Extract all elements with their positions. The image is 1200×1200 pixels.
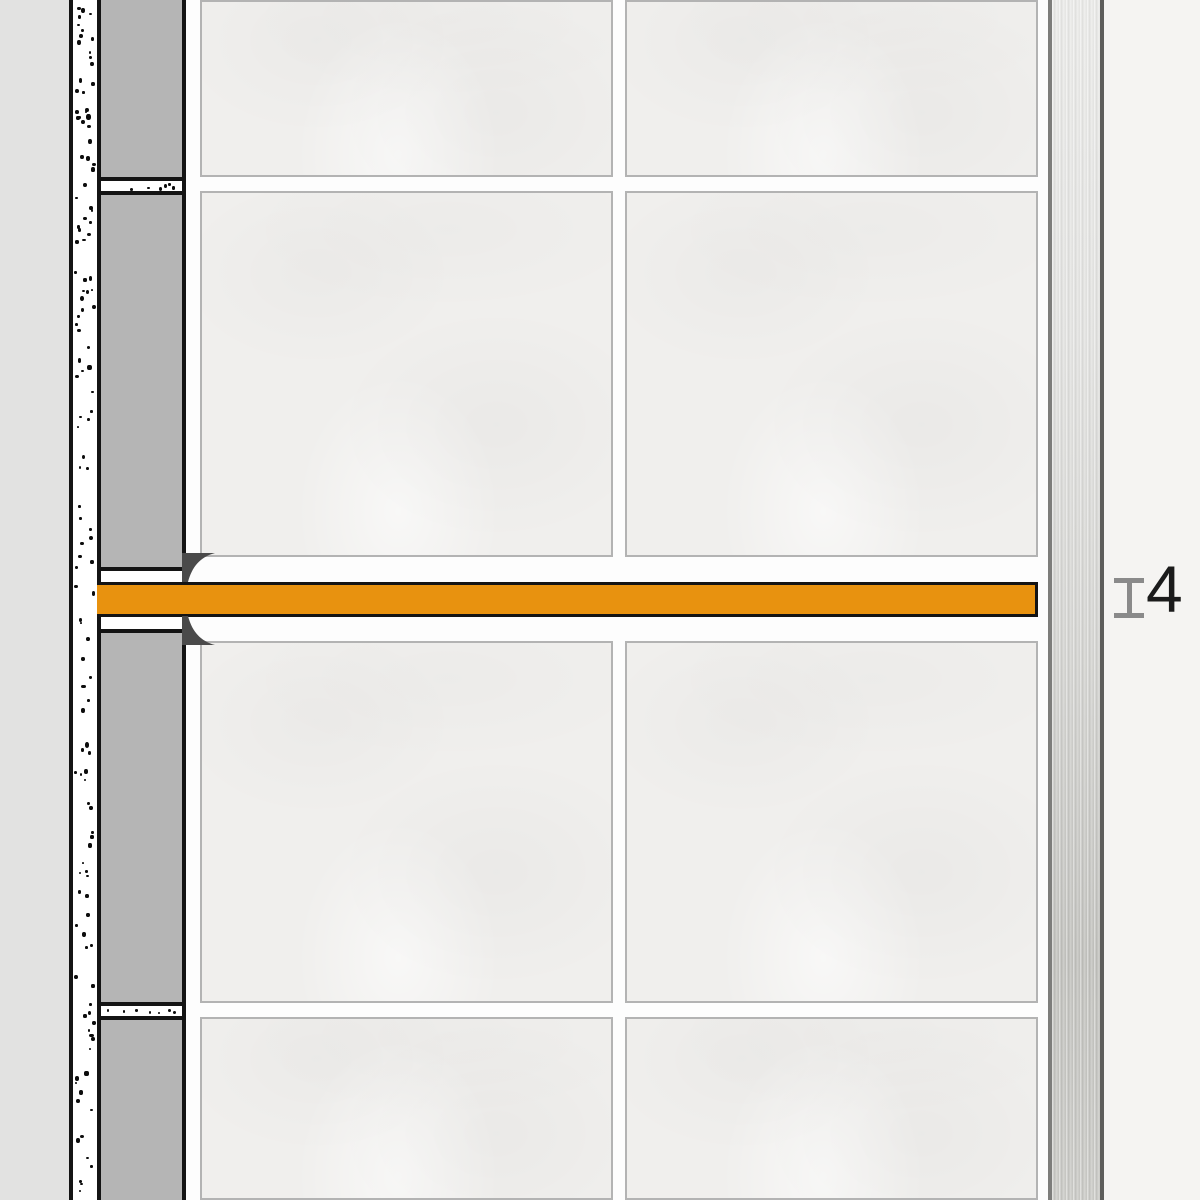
- speckle-dot: [77, 426, 79, 428]
- speckle-dot: [86, 156, 90, 160]
- speckle-dot: [74, 975, 78, 979]
- speckle-dot: [88, 139, 92, 144]
- speckle-dot: [78, 505, 81, 508]
- speckle-dot: [79, 416, 81, 418]
- mortar-joint: [101, 1006, 182, 1016]
- tile: [625, 1017, 1038, 1200]
- speckle-dot: [83, 217, 86, 220]
- speckle-dot: [77, 24, 80, 26]
- speckle-dot: [91, 167, 95, 172]
- speckle-dot: [149, 1011, 151, 1014]
- speckle-dot: [92, 305, 96, 310]
- speckle-dot: [80, 773, 82, 776]
- speckle-dot: [158, 1012, 160, 1015]
- tile: [200, 641, 613, 1003]
- speckle-dot: [90, 410, 93, 413]
- speckle-dot: [78, 555, 81, 558]
- speckle-dot: [75, 89, 79, 93]
- speckle-dot: [92, 591, 96, 596]
- speckle-dot: [87, 233, 91, 236]
- anchor-wedge-icon: [182, 553, 216, 645]
- speckle-dot: [80, 542, 84, 545]
- speckle-dot: [172, 186, 175, 189]
- speckle-dot: [123, 1010, 125, 1012]
- speckle-dot: [81, 308, 85, 312]
- speckle-dot: [81, 748, 84, 751]
- speckle-dot: [88, 843, 92, 848]
- speckle-dot: [82, 455, 85, 459]
- speckle-dot: [91, 984, 95, 988]
- speckle-dot: [86, 875, 89, 878]
- speckle-dot: [82, 290, 85, 292]
- tile: [625, 191, 1038, 557]
- speckle-dot: [83, 1014, 87, 1018]
- speckle-dot: [75, 566, 78, 569]
- speckle-dot: [85, 894, 89, 898]
- speckle-dot: [87, 802, 90, 806]
- speckle-dot: [85, 742, 89, 748]
- speckle-dot: [88, 1029, 91, 1032]
- speckle-dot: [75, 323, 78, 326]
- speckle-dot: [82, 932, 86, 937]
- speckle-dot: [87, 699, 90, 702]
- adhesive-layer-block: [101, 629, 182, 1006]
- speckle-dot: [86, 114, 90, 119]
- tile: [625, 641, 1038, 1003]
- speckle-dot: [82, 862, 84, 864]
- tile: [200, 191, 613, 557]
- speckle-dot: [82, 91, 85, 94]
- speckle-dot: [78, 15, 81, 18]
- speckle-dot: [92, 163, 96, 167]
- speckle-dot: [80, 1183, 83, 1185]
- metal-edge-profile: [1052, 0, 1100, 1200]
- speckle-dot: [91, 391, 94, 394]
- speckle-dot: [90, 1109, 93, 1112]
- speckle-dot: [89, 1003, 91, 1006]
- mortar-bed-strip: [73, 0, 97, 1200]
- speckle-dot: [76, 1138, 80, 1142]
- speckle-dot: [75, 924, 78, 927]
- speckle-dot: [74, 585, 78, 589]
- speckle-dot: [90, 944, 93, 948]
- speckle-dot: [86, 1157, 90, 1160]
- speckle-dot: [76, 1099, 80, 1103]
- speckle-dot: [90, 560, 94, 564]
- speckle-dot: [83, 278, 86, 281]
- mortar-joint: [101, 181, 182, 191]
- speckle-dot: [89, 676, 93, 679]
- speckle-dot: [81, 708, 85, 713]
- speckle-dot: [89, 536, 93, 540]
- speckle-dot: [89, 806, 93, 810]
- speckle-dot: [77, 329, 81, 333]
- speckle-dot: [80, 296, 84, 301]
- speckle-dot: [85, 946, 88, 949]
- speckle-dot: [74, 271, 76, 274]
- speckle-dot: [79, 466, 82, 469]
- speckle-dot: [85, 870, 88, 872]
- speckle-dot: [88, 1011, 91, 1015]
- speckle-dot: [173, 1011, 176, 1014]
- tile: [625, 0, 1038, 177]
- speckle-dot: [79, 1090, 83, 1095]
- speckle-dot: [168, 183, 171, 186]
- speckle-dot: [91, 289, 93, 291]
- speckle-dot: [89, 276, 93, 281]
- speckle-dot: [107, 1009, 109, 1012]
- speckle-dot: [84, 1071, 88, 1076]
- speckle-dot: [91, 831, 94, 834]
- speckle-dot: [89, 221, 92, 223]
- speckle-dot: [82, 239, 85, 242]
- speckle-dot: [147, 187, 150, 190]
- speckle-dot: [79, 1190, 81, 1192]
- speckle-dot: [77, 40, 81, 45]
- speckle-dot: [75, 375, 79, 379]
- speckle-dot: [77, 7, 81, 10]
- speckle-dot: [135, 1009, 138, 1012]
- speckle-dot: [79, 34, 83, 38]
- speckle-dot: [84, 769, 88, 774]
- speckle-dot: [75, 240, 79, 244]
- speckle-dot: [75, 197, 77, 200]
- adhesive-layer-block: [101, 1016, 182, 1200]
- speckle-dot: [80, 155, 84, 159]
- speckle-dot: [89, 13, 92, 15]
- speckle-dot: [90, 1165, 93, 1167]
- speckle-dot: [91, 37, 94, 40]
- speckle-dot: [80, 622, 82, 624]
- speckle-dot: [78, 890, 81, 893]
- speckle-dot: [87, 125, 91, 129]
- speckle-dot: [91, 209, 93, 212]
- dimension-value: 4: [1146, 556, 1190, 626]
- speckle-dot: [91, 1037, 95, 1041]
- speckle-dot: [87, 346, 91, 349]
- speckle-dot: [87, 365, 91, 370]
- speckle-dot: [89, 528, 91, 531]
- speckle-dot: [81, 8, 85, 13]
- speckle-dot: [92, 1021, 96, 1025]
- speckle-dot: [86, 637, 90, 641]
- speckle-dot: [86, 467, 88, 470]
- speckle-dot: [168, 1009, 171, 1013]
- speckle-dot: [81, 370, 84, 373]
- speckle-dot: [78, 358, 82, 363]
- speckle-dot: [89, 1048, 91, 1050]
- shelf-profile-bar: [97, 582, 1038, 617]
- speckle-dot: [79, 517, 81, 520]
- speckle-dot: [84, 779, 86, 781]
- speckle-dot: [79, 78, 83, 83]
- speckle-dot: [74, 771, 77, 774]
- speckle-dot: [79, 872, 81, 874]
- adhesive-layer-block: [101, 0, 182, 181]
- speckle-dot: [81, 685, 85, 689]
- speckle-dot: [86, 913, 90, 917]
- speckle-dot: [75, 1082, 77, 1084]
- speckle-dot: [81, 29, 84, 32]
- speckle-dot: [89, 51, 91, 54]
- speckle-dot: [90, 62, 94, 67]
- speckle-dot: [90, 835, 93, 839]
- speckle-dot: [75, 1076, 79, 1080]
- adhesive-layer-block: [101, 191, 182, 571]
- speckle-dot: [88, 751, 92, 755]
- cross-section-diagram: 4: [0, 0, 1200, 1200]
- speckle-dot: [91, 82, 94, 86]
- tile: [200, 0, 613, 177]
- speckle-dot: [81, 657, 85, 661]
- speckle-dot: [164, 184, 167, 188]
- speckle-dot: [77, 225, 80, 228]
- speckle-dot: [75, 110, 79, 114]
- speckle-dot: [81, 120, 85, 124]
- speckle-dot: [80, 1135, 84, 1138]
- speckle-dot: [86, 290, 89, 294]
- speckle-dot: [83, 183, 87, 187]
- speckle-dot: [78, 116, 81, 119]
- speckle-dot: [87, 418, 89, 421]
- speckle-dot: [77, 315, 79, 318]
- dimension-extent-bottom-bar: [1114, 613, 1144, 618]
- tile: [200, 1017, 613, 1200]
- wall-substrate: [0, 0, 69, 1200]
- speckle-dot: [89, 56, 92, 59]
- dimension-extent-stem: [1127, 578, 1132, 618]
